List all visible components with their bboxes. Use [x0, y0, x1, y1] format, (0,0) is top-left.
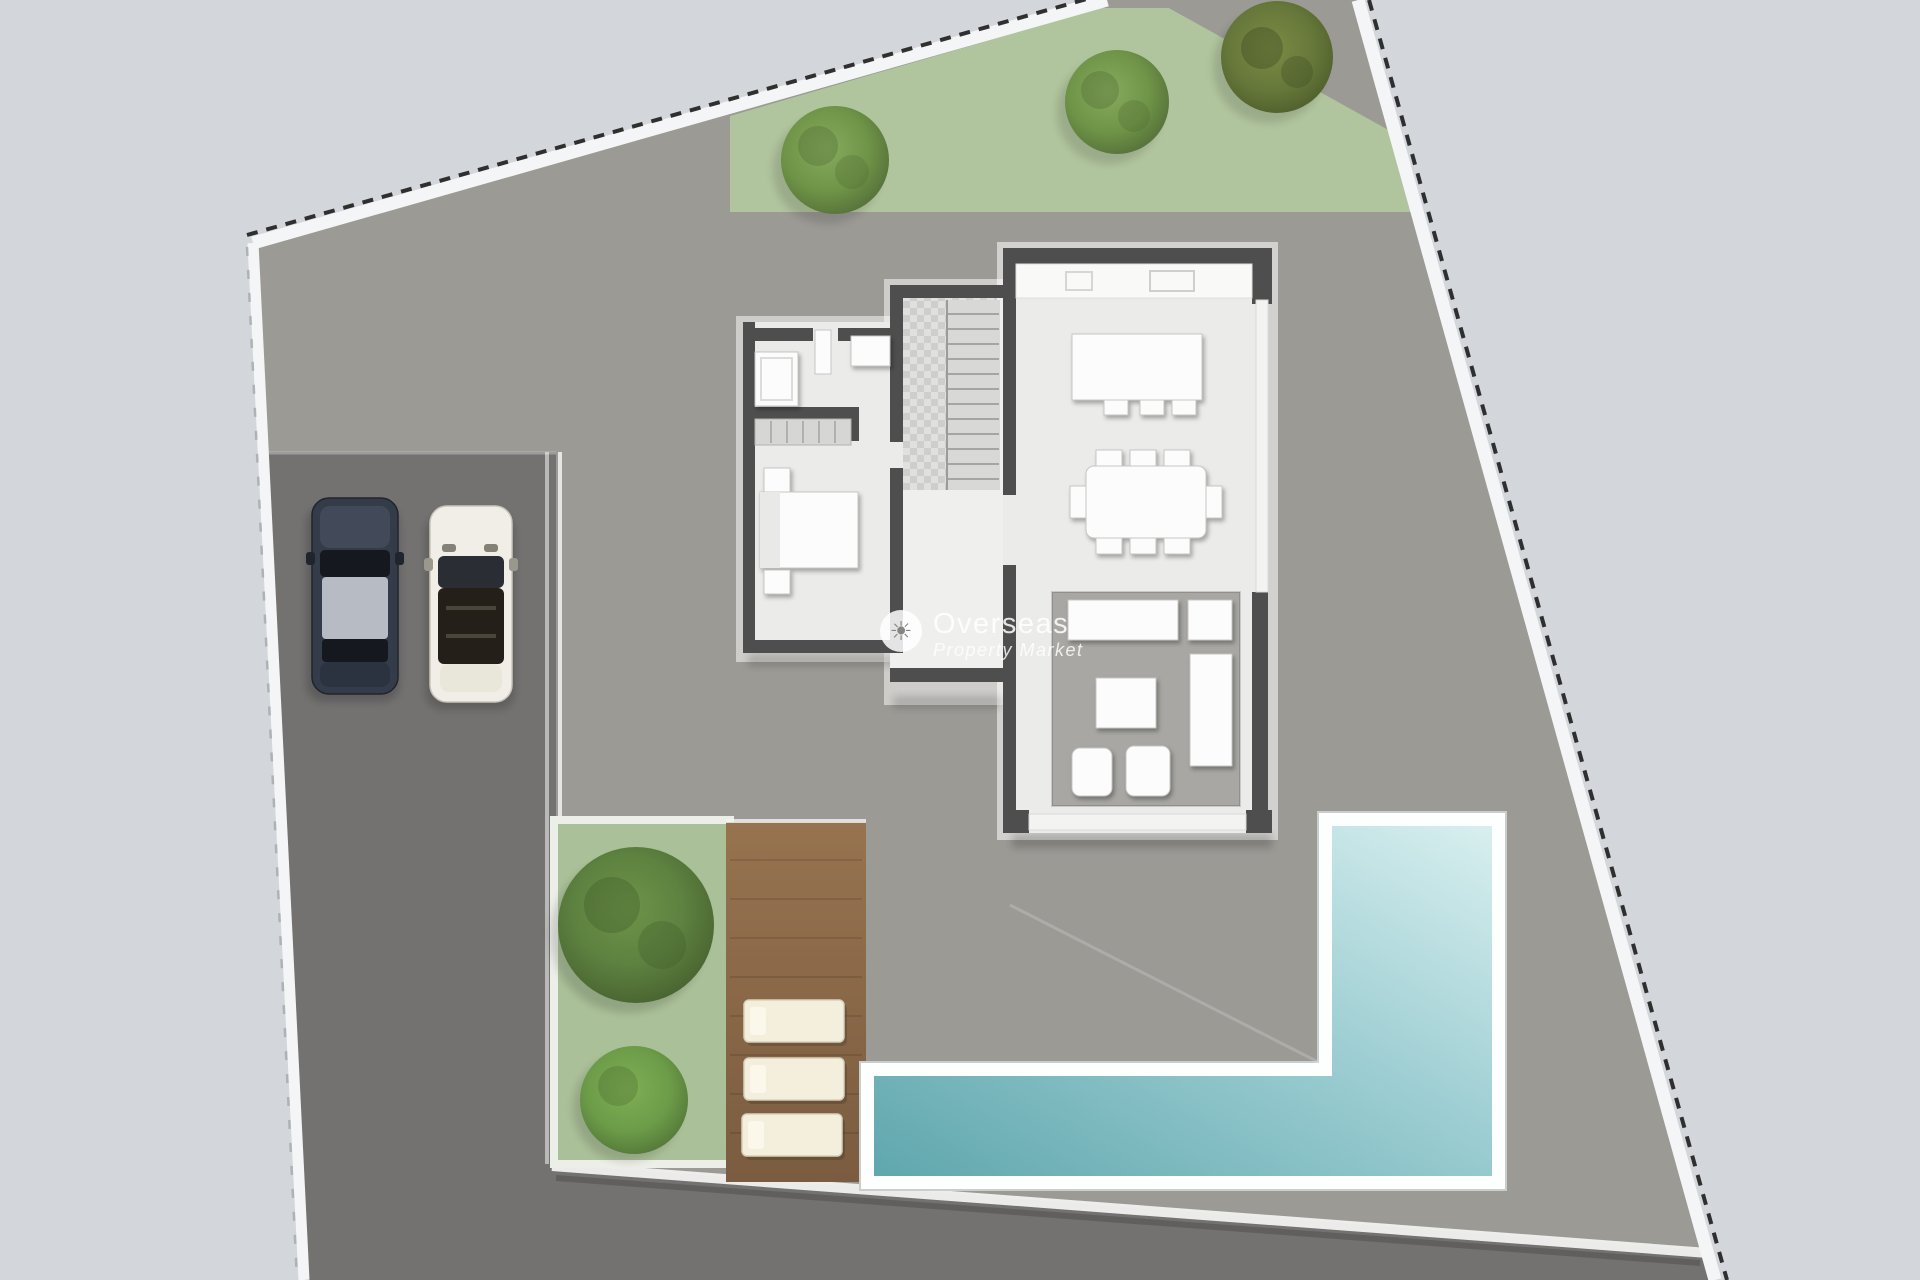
nightstand — [764, 468, 790, 492]
headlight — [484, 544, 498, 552]
armchair — [1188, 600, 1232, 640]
vanity — [851, 336, 890, 366]
wing-mirror — [424, 558, 433, 571]
wood-deck — [726, 821, 866, 1182]
wing-mirror — [306, 552, 315, 565]
pouf — [1126, 746, 1170, 796]
glass-wall — [1256, 300, 1268, 592]
bar-stool — [1140, 400, 1164, 415]
door-icon — [815, 330, 831, 374]
staircase — [903, 298, 1000, 490]
bar-stool — [1172, 400, 1196, 415]
dining-chair — [1206, 486, 1222, 518]
site-plan-illustration — [0, 0, 1920, 1280]
chaise — [1190, 654, 1232, 766]
dining-chair — [1096, 538, 1122, 554]
wardrobe — [755, 419, 851, 445]
dining-area — [1070, 450, 1222, 554]
house-shadow — [893, 696, 1001, 708]
pouf — [1072, 748, 1112, 796]
dining-chair — [1130, 450, 1156, 466]
sofa — [1068, 600, 1178, 640]
bar-stool — [1104, 400, 1128, 415]
glass-wall — [1029, 814, 1246, 830]
headlight — [442, 544, 456, 552]
dining-chair — [1130, 538, 1156, 554]
garden — [550, 816, 734, 1168]
coffee-table — [1096, 678, 1156, 728]
seat-line — [446, 606, 496, 610]
sun-lounger — [742, 1114, 845, 1160]
site-plan: ☀ Overseas Property Market — [0, 0, 1920, 1280]
dining-chair — [1164, 450, 1190, 466]
dining-chair — [1164, 538, 1190, 554]
kitchen-island — [1072, 334, 1202, 400]
dining-chair — [1070, 486, 1086, 518]
nightstand — [764, 570, 790, 594]
car-white — [424, 506, 518, 710]
sun-lounger — [744, 1058, 847, 1104]
kitchen-counter — [1016, 264, 1252, 298]
wing-mirror — [395, 552, 404, 565]
bed-pillows — [760, 492, 780, 568]
sun-lounger — [744, 1000, 847, 1046]
dining-table — [1086, 466, 1206, 538]
car-dark — [306, 498, 404, 702]
seat-line — [446, 634, 496, 638]
house-shadow — [1012, 834, 1272, 848]
house-shadow — [748, 654, 906, 666]
dining-chair — [1096, 450, 1122, 466]
wing-mirror — [509, 558, 518, 571]
